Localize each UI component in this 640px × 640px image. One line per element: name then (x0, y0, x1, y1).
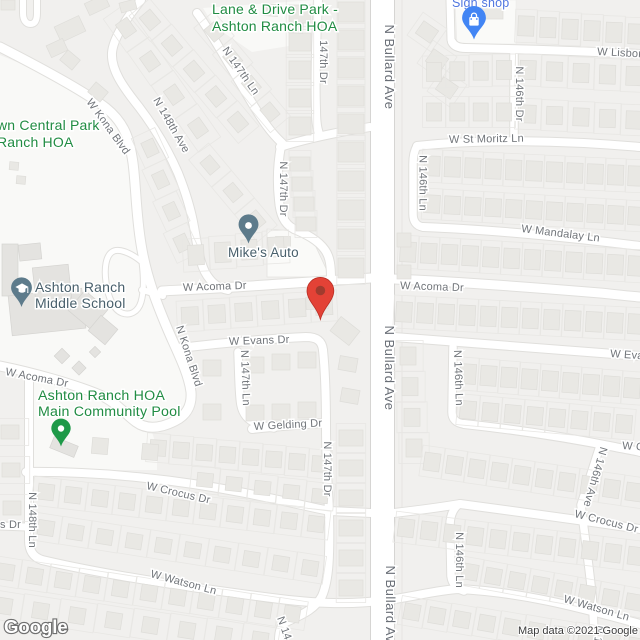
svg-text:N 146th Ln: N 146th Ln (451, 350, 465, 406)
svg-text:Ashton Ranch HOA: Ashton Ranch HOA (212, 18, 338, 34)
svg-text:Mike's Auto: Mike's Auto (228, 245, 299, 260)
svg-text:Ashton Ranch HOA: Ashton Ranch HOA (38, 388, 165, 404)
svg-text:N Bullard Ave: N Bullard Ave (382, 24, 397, 109)
svg-text:Middle School: Middle School (35, 295, 126, 311)
svg-text:W Ge: W Ge (622, 440, 640, 454)
svg-text:N 147th Ln: N 147th Ln (238, 350, 252, 406)
svg-text:Main Community Pool: Main Community Pool (38, 404, 181, 420)
svg-text:Map data ©2021 Google: Map data ©2021 Google (518, 625, 638, 637)
svg-text:W Acoma Dr: W Acoma Dr (183, 280, 247, 294)
svg-text:W Lisbon: W Lisbon (597, 46, 640, 60)
svg-text:N 146th Ln: N 146th Ln (417, 155, 429, 211)
svg-text:Ashton Ranch: Ashton Ranch (35, 279, 125, 295)
svg-text:W Evans Dr: W Evans Dr (229, 334, 290, 348)
svg-text:Google: Google (4, 616, 68, 637)
svg-text:N Bullard Ave: N Bullard Ave (383, 565, 398, 640)
svg-text:W Acoma Dr: W Acoma Dr (400, 280, 464, 294)
svg-text:s Dr: s Dr (0, 519, 21, 531)
svg-text:N 148th Ln: N 148th Ln (26, 492, 38, 548)
svg-text:N 146th Ln: N 146th Ln (453, 532, 465, 588)
svg-text:147th Dr: 147th Dr (317, 40, 329, 84)
svg-text:N Bullard Ave: N Bullard Ave (382, 325, 397, 410)
svg-text:W St Moritz Ln: W St Moritz Ln (449, 133, 524, 146)
svg-text:N 147th Dr: N 147th Dr (321, 441, 333, 496)
svg-text:Ranch HOA: Ranch HOA (0, 134, 74, 150)
svg-text:wn Central Park: wn Central Park (0, 117, 100, 133)
svg-text:N 147th Dr: N 147th Dr (277, 161, 289, 216)
svg-text:Lane & Drive Park -: Lane & Drive Park - (212, 1, 338, 17)
svg-text:N 146th Dr: N 146th Dr (513, 66, 525, 121)
